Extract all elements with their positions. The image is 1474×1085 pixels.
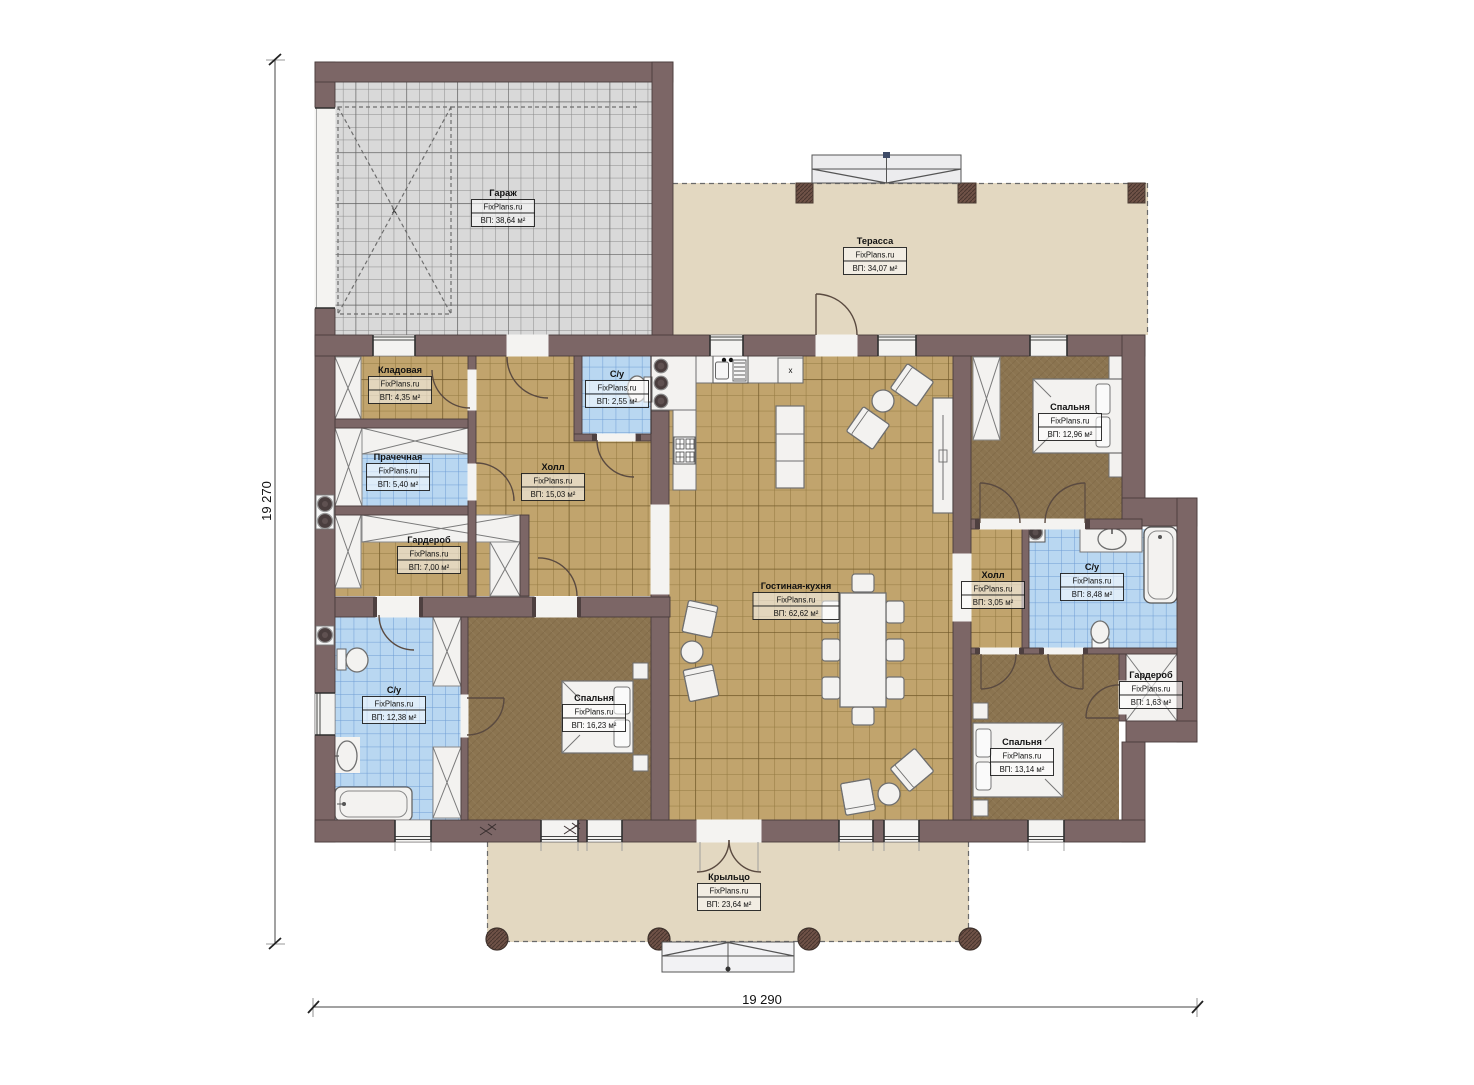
svg-text:FixPlans.ru: FixPlans.ru	[534, 477, 573, 486]
svg-text:FixPlans.ru: FixPlans.ru	[777, 596, 816, 605]
svg-text:FixPlans.ru: FixPlans.ru	[379, 467, 418, 476]
svg-text:FixPlans.ru: FixPlans.ru	[974, 585, 1013, 594]
svg-text:Кладовая: Кладовая	[378, 365, 422, 375]
svg-text:Крыльцо: Крыльцо	[708, 872, 750, 882]
svg-text:19 290: 19 290	[742, 992, 782, 1007]
svg-text:Холл: Холл	[981, 570, 1004, 580]
svg-text:FixPlans.ru: FixPlans.ru	[1073, 577, 1112, 586]
svg-text:ВП: 12,96 м²: ВП: 12,96 м²	[1048, 430, 1093, 439]
svg-text:Прачечная: Прачечная	[374, 452, 423, 462]
svg-text:FixPlans.ru: FixPlans.ru	[1003, 752, 1042, 761]
svg-text:FixPlans.ru: FixPlans.ru	[381, 380, 420, 389]
svg-text:FixPlans.ru: FixPlans.ru	[856, 251, 895, 260]
svg-text:ВП: 8,48 м²: ВП: 8,48 м²	[1072, 590, 1113, 599]
svg-text:Спальня: Спальня	[1002, 737, 1042, 747]
svg-text:Спальня: Спальня	[1050, 402, 1090, 412]
svg-text:Гостиная-кухня: Гостиная-кухня	[761, 581, 831, 591]
svg-text:Гардероб: Гардероб	[407, 535, 451, 545]
svg-text:FixPlans.ru: FixPlans.ru	[410, 550, 449, 559]
svg-text:FixPlans.ru: FixPlans.ru	[1051, 417, 1090, 426]
svg-text:ВП: 13,14 м²: ВП: 13,14 м²	[1000, 765, 1045, 774]
svg-text:ВП: 34,07 м²: ВП: 34,07 м²	[853, 264, 898, 273]
svg-text:ВП: 15,03 м²: ВП: 15,03 м²	[531, 490, 576, 499]
svg-text:ВП: 4,35 м²: ВП: 4,35 м²	[380, 393, 421, 402]
svg-text:ВП: 38,64 м²: ВП: 38,64 м²	[481, 216, 526, 225]
svg-text:19 270: 19 270	[259, 481, 274, 521]
svg-text:FixPlans.ru: FixPlans.ru	[598, 384, 637, 393]
svg-text:FixPlans.ru: FixPlans.ru	[1132, 685, 1171, 694]
svg-text:FixPlans.ru: FixPlans.ru	[575, 708, 614, 717]
svg-text:ВП: 3,05 м²: ВП: 3,05 м²	[973, 598, 1014, 607]
svg-text:FixPlans.ru: FixPlans.ru	[710, 887, 749, 896]
svg-text:ВП: 7,00 м²: ВП: 7,00 м²	[409, 563, 450, 572]
svg-text:С/у: С/у	[387, 685, 402, 695]
svg-text:С/у: С/у	[1085, 562, 1100, 572]
svg-text:x: x	[392, 206, 396, 215]
svg-text:ВП: 23,64 м²: ВП: 23,64 м²	[707, 900, 752, 909]
svg-text:ВП: 2,55 м²: ВП: 2,55 м²	[597, 397, 638, 406]
svg-text:ВП: 5,40 м²: ВП: 5,40 м²	[378, 480, 419, 489]
svg-text:Гардероб: Гардероб	[1129, 670, 1173, 680]
svg-text:ВП: 12,38 м²: ВП: 12,38 м²	[372, 713, 417, 722]
svg-text:Терасса: Терасса	[857, 236, 894, 246]
svg-text:Холл: Холл	[541, 462, 564, 472]
svg-text:x: x	[789, 366, 793, 375]
svg-text:ВП: 1,63 м²: ВП: 1,63 м²	[1131, 698, 1172, 707]
svg-text:Гараж: Гараж	[489, 188, 517, 198]
svg-text:FixPlans.ru: FixPlans.ru	[375, 700, 414, 709]
svg-text:С/у: С/у	[610, 369, 625, 379]
svg-text:FixPlans.ru: FixPlans.ru	[484, 203, 523, 212]
svg-text:ВП: 16,23 м²: ВП: 16,23 м²	[572, 721, 617, 730]
svg-text:Спальня: Спальня	[574, 693, 614, 703]
svg-text:ВП: 62,62 м²: ВП: 62,62 м²	[774, 609, 819, 618]
